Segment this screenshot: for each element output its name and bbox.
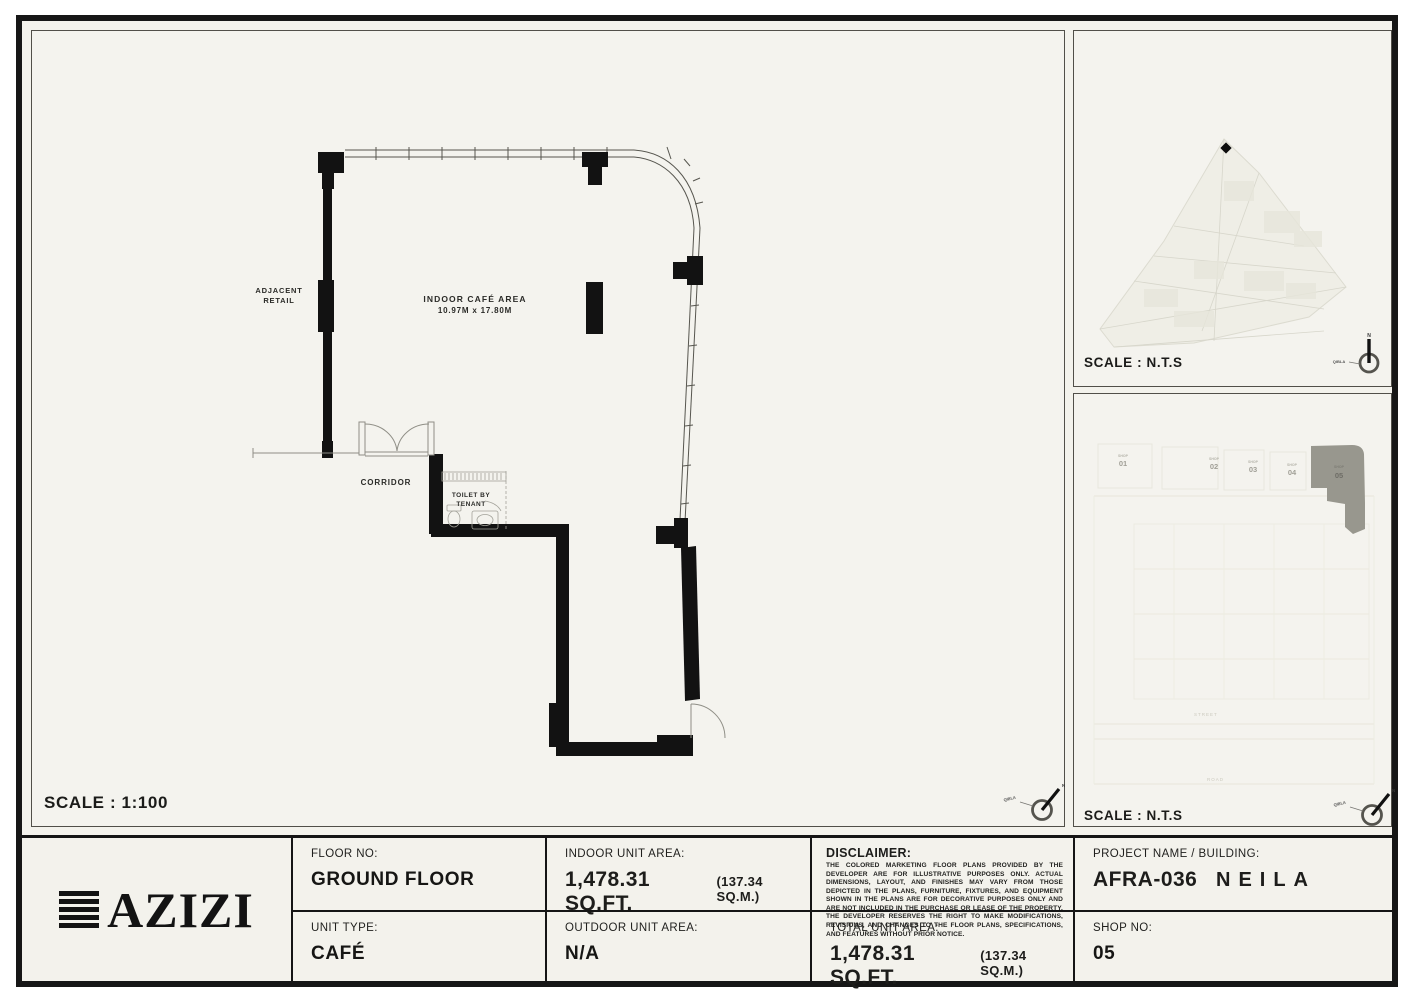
logo-cell: AZIZI	[22, 838, 291, 981]
walls	[318, 152, 703, 756]
project-name-value: AFRA-036	[1093, 868, 1197, 892]
unit-type-cell: UNIT TYPE: CAFÉ	[293, 910, 545, 981]
map-scale-label: SCALE : N.T.S	[1084, 355, 1183, 370]
shop-no-value: 05	[1093, 943, 1382, 965]
main-scale-label: SCALE : 1:100	[44, 793, 168, 813]
unit-shop-label: SHOP	[1118, 454, 1129, 458]
unit-shop-label: SHOP	[1248, 460, 1259, 464]
compass-north-label: N	[1062, 783, 1065, 788]
indoor-area-label: INDOOR UNIT AREA:	[565, 848, 800, 860]
outdoor-area-cell: OUTDOOR UNIT AREA: N/A	[547, 910, 810, 981]
adjacent-retail-label-1: ADJACENT	[255, 286, 302, 295]
total-area-cell: TOTAL UNIT AREA: 1,478.31 SQ.FT. (137.34…	[812, 910, 1073, 981]
azizi-logo-text: AZIZI	[107, 885, 254, 935]
compass-qibla-label: QIBLA	[1333, 359, 1346, 364]
site-plan-scale-label: SCALE : N.T.S	[1084, 808, 1183, 823]
compass-north-label: N	[1367, 333, 1371, 339]
unit-number: 01	[1119, 459, 1127, 468]
window-wall	[345, 147, 703, 522]
floor-no-label: FLOOR NO:	[311, 848, 535, 860]
unit-type-value: CAFÉ	[311, 943, 535, 965]
door-swing	[691, 704, 725, 738]
azizi-logo: AZIZI	[59, 885, 254, 935]
compass-qibla-label: QIBLA	[1003, 795, 1016, 803]
disclaimer-label: DISCLAIMER:	[826, 846, 1063, 860]
azizi-bars-icon	[59, 891, 99, 928]
title-block: AZIZI FLOOR NO: GROUND FLOOR UNIT TYPE: …	[22, 835, 1392, 981]
unit-number: 02	[1210, 462, 1218, 471]
unit-number: 04	[1288, 468, 1297, 477]
total-area-label: TOTAL UNIT AREA:	[830, 922, 1063, 934]
compass-qibla-label: QIBLA	[1333, 800, 1346, 808]
toilet-label-1: TOILET BY	[452, 492, 490, 499]
floor-plan-drawing: INDOOR CAFÉ AREA 10.97M x 17.80M ADJACEN…	[32, 31, 1063, 825]
road-label: ROAD	[1207, 777, 1224, 782]
outdoor-area-label: OUTDOOR UNIT AREA:	[565, 922, 800, 934]
unit-shop-label: SHOP	[1334, 465, 1345, 469]
compass-north-label: N	[1392, 788, 1395, 793]
floor-no-value: GROUND FLOOR	[311, 869, 535, 891]
site-plan-drawing: STREET ROAD SHOP 01 SHOP 02 SHOP 03 SHOP…	[1074, 394, 1390, 825]
project-name-label: PROJECT NAME / BUILDING:	[1093, 848, 1382, 860]
outdoor-area-value: N/A	[565, 943, 800, 965]
toilet-label-2: TENANT	[456, 501, 485, 508]
indoor-area-label: INDOOR CAFÉ AREA	[423, 294, 526, 304]
unit-number: 03	[1249, 465, 1257, 474]
highlighted-unit-05	[1311, 445, 1365, 534]
site-plan-panel: STREET ROAD SHOP 01 SHOP 02 SHOP 03 SHOP…	[1073, 393, 1392, 827]
floor-plan-sheet: INDOOR CAFÉ AREA 10.97M x 17.80M ADJACEN…	[0, 0, 1414, 1000]
compass-icon: N QIBLA	[1324, 330, 1394, 386]
corridor-label: CORRIDOR	[361, 478, 412, 487]
total-area-value: 1,478.31 SQ.FT.	[830, 942, 971, 990]
unit-shop-label: SHOP	[1287, 463, 1298, 467]
disclaimer-cell: DISCLAIMER: THE COLORED MARKETING FLOOR …	[812, 838, 1073, 910]
corridor-line	[253, 448, 359, 458]
floor-plan-panel: INDOOR CAFÉ AREA 10.97M x 17.80M ADJACEN…	[31, 30, 1065, 827]
compass-icon: N QIBLA	[1328, 781, 1400, 837]
indoor-area-secondary: (137.34 SQ.M.)	[717, 874, 800, 904]
adjacent-retail-label-2: RETAIL	[263, 296, 294, 305]
floor-no-cell: FLOOR NO: GROUND FLOOR	[293, 838, 545, 910]
project-name-cell: PROJECT NAME / BUILDING: AFRA-036 NEILA	[1075, 838, 1392, 910]
indoor-area-value: 1,478.31 SQ.FT.	[565, 868, 708, 916]
indoor-area-dims: 10.97M x 17.80M	[438, 306, 512, 315]
double-door	[359, 422, 434, 456]
total-area-secondary: (137.34 SQ.M.)	[980, 948, 1063, 978]
unit-shop-label: SHOP	[1209, 457, 1220, 461]
compass-icon: N QIBLA	[998, 776, 1070, 832]
shop-no-cell: SHOP NO: 05	[1075, 910, 1392, 981]
building-name-value: NEILA	[1216, 869, 1316, 892]
shop-no-label: SHOP NO:	[1093, 922, 1382, 934]
street-label: STREET	[1194, 712, 1218, 717]
unit-number: 05	[1335, 471, 1343, 480]
indoor-area-cell: INDOOR UNIT AREA: 1,478.31 SQ.FT. (137.3…	[547, 838, 810, 910]
unit-type-label: UNIT TYPE:	[311, 922, 535, 934]
